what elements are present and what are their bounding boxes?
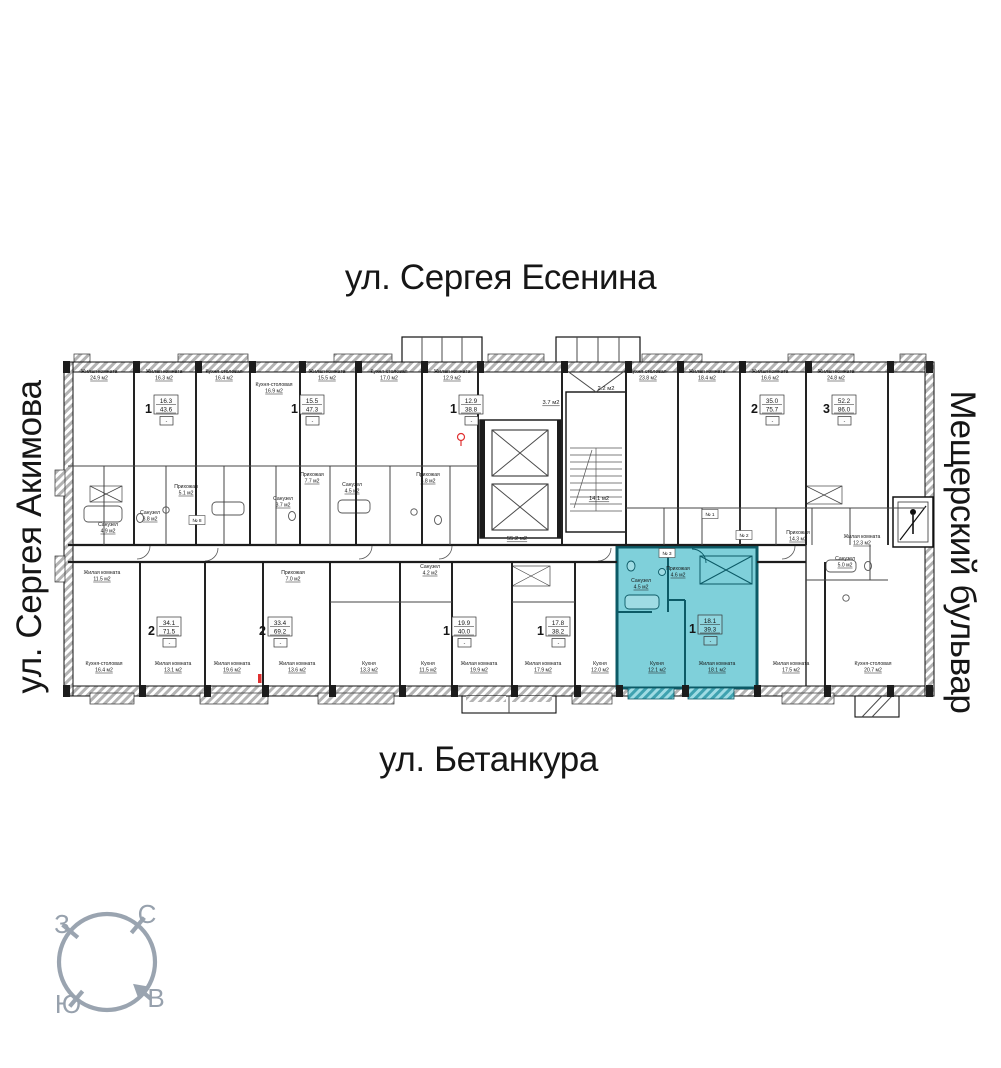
room-label: Кухня13.3 м2 bbox=[360, 661, 378, 674]
room-label: Санузел3.7 м2 bbox=[273, 496, 293, 509]
svg-text:4.5 м2: 4.5 м2 bbox=[345, 489, 360, 495]
svg-text:5.1 м2: 5.1 м2 bbox=[179, 491, 194, 497]
apartment-info-box[interactable]: 235.075.7- bbox=[751, 395, 784, 425]
room-label: Санузел4.5 м2 bbox=[631, 578, 651, 591]
svg-text:47.3: 47.3 bbox=[306, 406, 319, 413]
toilet-icon bbox=[289, 512, 296, 521]
svg-text:Кухня: Кухня bbox=[421, 661, 435, 667]
svg-text:Жилая комната: Жилая комната bbox=[752, 369, 789, 375]
room-label: Санузел4.2 м2 bbox=[420, 564, 440, 577]
svg-text:75.7: 75.7 bbox=[766, 406, 779, 413]
exterior-stair bbox=[855, 696, 899, 717]
svg-text:Жилая комната: Жилая комната bbox=[525, 661, 562, 667]
sink-icon bbox=[843, 595, 849, 601]
svg-text:2: 2 bbox=[751, 402, 758, 416]
svg-text:Прихожая: Прихожая bbox=[666, 566, 690, 572]
room-label: Кухня11.5 м2 bbox=[419, 661, 437, 674]
room-label: Кухня12.1 м2 bbox=[648, 661, 666, 674]
svg-text:24.8 м2: 24.8 м2 bbox=[827, 376, 845, 382]
wardrobe-icon bbox=[806, 486, 842, 504]
svg-text:18.1 м2: 18.1 м2 bbox=[708, 668, 726, 674]
svg-text:2: 2 bbox=[148, 624, 155, 638]
svg-text:Жилая комната: Жилая комната bbox=[214, 661, 251, 667]
room-label: Кухня-столовая16.9 м2 bbox=[256, 382, 293, 395]
unit-number-badge: № 2 bbox=[736, 531, 752, 540]
svg-text:Прихожая: Прихожая bbox=[300, 472, 324, 478]
apartment-info-box[interactable]: 119.940.0- bbox=[443, 617, 476, 647]
balcony-tab-highlight bbox=[688, 688, 734, 699]
room-label: Жилая комната12.3 м2 bbox=[844, 534, 881, 547]
svg-text:13.6 м2: 13.6 м2 bbox=[288, 668, 306, 674]
svg-text:7.0 м2: 7.0 м2 bbox=[286, 577, 301, 583]
room-label: Прихожая14.3 м2 bbox=[786, 530, 810, 543]
svg-text:Санузел: Санузел bbox=[631, 578, 651, 584]
svg-text:33.4: 33.4 bbox=[274, 620, 287, 627]
room-label: Кухня-столовая17.0 м2 bbox=[371, 369, 408, 382]
svg-text:3.7 м2: 3.7 м2 bbox=[276, 503, 291, 509]
bathtub-icon bbox=[84, 506, 122, 522]
svg-text:Кухня-столовая: Кухня-столовая bbox=[855, 661, 892, 667]
svg-text:19.9 м2: 19.9 м2 bbox=[470, 668, 488, 674]
svg-text:17.8: 17.8 bbox=[552, 620, 565, 627]
svg-text:39.3: 39.3 bbox=[704, 626, 717, 633]
room-label: Жилая комната12.9 м2 bbox=[434, 369, 471, 382]
room-label: Жилая комната13.1 м2 bbox=[155, 661, 192, 674]
toilet-icon bbox=[627, 561, 635, 571]
svg-text:Кухня-столовая: Кухня-столовая bbox=[206, 369, 243, 375]
room-label: Санузел5.0 м2 bbox=[835, 556, 855, 569]
svg-text:18.1: 18.1 bbox=[704, 618, 717, 625]
sink-icon bbox=[659, 569, 666, 576]
room-label: Санузел3.8 м2 bbox=[140, 510, 160, 523]
svg-text:Жилая комната: Жилая комната bbox=[279, 661, 316, 667]
svg-text:19.6 м2: 19.6 м2 bbox=[223, 668, 241, 674]
svg-text:Кухня-столовая: Кухня-столовая bbox=[371, 369, 408, 375]
room-label: Жилая комната19.6 м2 bbox=[214, 661, 251, 674]
room-label: Кухня12.0 м2 bbox=[591, 661, 609, 674]
svg-text:7.7 м2: 7.7 м2 bbox=[305, 479, 320, 485]
room-label: Прихожая7.7 м2 bbox=[300, 472, 324, 485]
core-area-label: 3.7 м2 bbox=[542, 400, 559, 406]
svg-text:16.3 м2: 16.3 м2 bbox=[155, 376, 173, 382]
svg-text:4.9 м2: 4.9 м2 bbox=[101, 529, 116, 535]
svg-text:71.5: 71.5 bbox=[163, 628, 176, 635]
compass-north: С bbox=[138, 899, 157, 929]
room-label: Жилая комната17.9 м2 bbox=[525, 661, 562, 674]
svg-text:15.5 м2: 15.5 м2 bbox=[318, 376, 336, 382]
room-label: Жилая комната11.5 м2 bbox=[84, 570, 121, 583]
room-label: Санузел4.5 м2 bbox=[342, 482, 362, 495]
svg-text:16.6 м2: 16.6 м2 bbox=[761, 376, 779, 382]
room-label: Жилая комната17.5 м2 bbox=[773, 661, 810, 674]
svg-text:16.4 м2: 16.4 м2 bbox=[95, 668, 113, 674]
svg-text:11.5 м2: 11.5 м2 bbox=[419, 668, 436, 674]
svg-text:Санузел: Санузел bbox=[420, 564, 440, 570]
svg-text:38.2: 38.2 bbox=[552, 628, 565, 635]
svg-text:40.0: 40.0 bbox=[458, 628, 471, 635]
svg-text:16.4 м2: 16.4 м2 bbox=[215, 376, 233, 382]
svg-text:34.1: 34.1 bbox=[163, 620, 176, 627]
svg-text:Санузел: Санузел bbox=[140, 510, 160, 516]
svg-text:17.5 м2: 17.5 м2 bbox=[782, 668, 800, 674]
room-label: Прихожая5.1 м2 bbox=[174, 484, 198, 497]
room-label: Жилая комната13.6 м2 bbox=[279, 661, 316, 674]
balcony-tab-highlight bbox=[628, 688, 674, 699]
svg-text:15.5: 15.5 bbox=[306, 398, 319, 405]
bottom-balcony bbox=[462, 696, 556, 713]
svg-text:Кухня: Кухня bbox=[593, 661, 607, 667]
svg-text:Жилая комната: Жилая комната bbox=[818, 369, 855, 375]
svg-text:Прихожая: Прихожая bbox=[786, 530, 810, 536]
room-label: Жилая комната24.9 м2 bbox=[81, 369, 118, 382]
svg-text:3: 3 bbox=[823, 402, 830, 416]
svg-text:11.5 м2: 11.5 м2 bbox=[93, 577, 110, 583]
stairwell bbox=[566, 370, 626, 532]
unit-number-badge: № 3 bbox=[659, 549, 675, 558]
svg-text:Кухня: Кухня bbox=[650, 661, 664, 667]
svg-text:16.9 м2: 16.9 м2 bbox=[265, 389, 283, 395]
svg-text:1: 1 bbox=[291, 402, 298, 416]
svg-text:Кухня: Кухня bbox=[362, 661, 376, 667]
unit-number-badge: № 8 bbox=[189, 516, 205, 525]
svg-text:17.0 м2: 17.0 м2 bbox=[380, 376, 398, 382]
svg-text:35.0: 35.0 bbox=[766, 398, 779, 405]
svg-text:38.8: 38.8 bbox=[465, 406, 478, 413]
svg-text:1: 1 bbox=[537, 624, 544, 638]
svg-text:13.3 м2: 13.3 м2 bbox=[360, 668, 378, 674]
apartment-info-box[interactable]: 352.286.0- bbox=[823, 395, 856, 425]
svg-text:1: 1 bbox=[443, 624, 450, 638]
room-label: Жилая комната18.4 м2 bbox=[689, 369, 726, 382]
svg-text:Прихожая: Прихожая bbox=[416, 472, 440, 478]
svg-text:23.8 м2: 23.8 м2 bbox=[639, 376, 657, 382]
room-label: Жилая комната24.8 м2 bbox=[818, 369, 855, 382]
svg-text:4.6 м2: 4.6 м2 bbox=[671, 573, 686, 579]
svg-text:Прихожая: Прихожая bbox=[174, 484, 198, 490]
room-label: Кухня-столовая16.4 м2 bbox=[86, 661, 123, 674]
apartment-info-box[interactable]: 234.171.5- bbox=[148, 617, 181, 647]
unit-number-badge: № 1 bbox=[702, 510, 718, 519]
svg-text:№ 3: № 3 bbox=[662, 551, 671, 557]
compass-east: В bbox=[147, 983, 164, 1013]
room-label: Жилая комната16.6 м2 bbox=[752, 369, 789, 382]
outer-wall-left bbox=[64, 362, 73, 696]
svg-text:14.1 м2: 14.1 м2 bbox=[589, 496, 609, 502]
svg-text:Жилая комната: Жилая комната bbox=[434, 369, 471, 375]
apartment-info-box[interactable]: 112.938.8- bbox=[450, 395, 483, 425]
svg-text:Жилая комната: Жилая комната bbox=[309, 369, 346, 375]
svg-text:Жилая комната: Жилая комната bbox=[844, 534, 881, 540]
side-tab bbox=[55, 556, 65, 582]
apartment-info-box[interactable]: 117.838.2- bbox=[537, 617, 570, 647]
core-area-label: 14.1 м2 bbox=[589, 496, 609, 502]
svg-text:Санузел: Санузел bbox=[835, 556, 855, 562]
svg-text:69.2: 69.2 bbox=[274, 628, 287, 635]
svg-text:2: 2 bbox=[259, 624, 266, 638]
svg-text:12.1 м2: 12.1 м2 bbox=[648, 668, 666, 674]
svg-text:43.6: 43.6 bbox=[160, 406, 173, 413]
fire-escape-icon bbox=[893, 497, 933, 547]
wardrobe-icon bbox=[512, 566, 550, 586]
svg-text:Жилая комната: Жилая комната bbox=[146, 369, 183, 375]
svg-text:19.9: 19.9 bbox=[458, 620, 471, 627]
svg-text:14.3 м2: 14.3 м2 bbox=[789, 537, 807, 543]
svg-text:3.8 м2: 3.8 м2 bbox=[143, 517, 158, 523]
core-area-label: 2.2 м2 bbox=[597, 386, 614, 392]
svg-text:Прихожая: Прихожая bbox=[281, 570, 305, 576]
svg-text:55.2 м2: 55.2 м2 bbox=[507, 536, 527, 542]
svg-text:17.9 м2: 17.9 м2 bbox=[534, 668, 552, 674]
compass-south: Ю bbox=[55, 989, 81, 1019]
svg-text:12.9 м2: 12.9 м2 bbox=[443, 376, 461, 382]
svg-text:1: 1 bbox=[689, 622, 696, 636]
svg-text:Жилая комната: Жилая комната bbox=[155, 661, 192, 667]
svg-text:86.0: 86.0 bbox=[838, 406, 851, 413]
svg-text:Жилая комната: Жилая комната bbox=[81, 369, 118, 375]
svg-text:Санузел: Санузел bbox=[342, 482, 362, 488]
room-label: Санузел4.9 м2 bbox=[98, 522, 118, 535]
svg-text:12.3 м2: 12.3 м2 bbox=[853, 541, 871, 547]
room-label: Кухня-столовая20.7 м2 bbox=[855, 661, 892, 674]
svg-text:52.2: 52.2 bbox=[838, 398, 851, 405]
svg-text:2.2 м2: 2.2 м2 bbox=[598, 386, 615, 392]
svg-text:Кухня-столовая: Кухня-столовая bbox=[86, 661, 123, 667]
apartment-info-box[interactable]: 116.343.6- bbox=[145, 395, 178, 425]
svg-text:20.7 м2: 20.7 м2 bbox=[864, 668, 882, 674]
compass: С З В Ю bbox=[54, 899, 165, 1019]
svg-text:12.9: 12.9 bbox=[465, 398, 478, 405]
svg-text:№ 2: № 2 bbox=[739, 533, 748, 539]
svg-text:3.7 м2: 3.7 м2 bbox=[543, 400, 560, 406]
svg-text:№ 1: № 1 bbox=[705, 512, 714, 518]
compass-west: З bbox=[54, 909, 70, 939]
svg-text:Жилая комната: Жилая комната bbox=[84, 570, 121, 576]
svg-text:Жилая комната: Жилая комната bbox=[461, 661, 498, 667]
svg-text:Кухня-столовая: Кухня-столовая bbox=[630, 369, 667, 375]
outer-wall-top bbox=[64, 362, 934, 372]
bathtub-icon bbox=[625, 595, 659, 609]
svg-text:1: 1 bbox=[450, 402, 457, 416]
svg-text:5.0 м2: 5.0 м2 bbox=[838, 563, 853, 569]
side-tab bbox=[55, 470, 65, 496]
bathtub-icon bbox=[338, 500, 370, 513]
room-label: Прихожая7.0 м2 bbox=[281, 570, 305, 583]
svg-text:16.3: 16.3 bbox=[160, 398, 173, 405]
elevator-shaft bbox=[492, 484, 548, 530]
svg-text:Жилая комната: Жилая комната bbox=[699, 661, 736, 667]
wardrobe-icon bbox=[90, 486, 122, 502]
svg-text:Жилая комната: Жилая комната bbox=[773, 661, 810, 667]
svg-text:Кухня-столовая: Кухня-столовая bbox=[256, 382, 293, 388]
svg-text:18.4 м2: 18.4 м2 bbox=[698, 376, 716, 382]
svg-text:№ 8: № 8 bbox=[192, 518, 201, 524]
room-label: Кухня-столовая16.4 м2 bbox=[206, 369, 243, 382]
room-label: Кухня-столовая23.8 м2 bbox=[630, 369, 667, 382]
svg-text:4.2 м2: 4.2 м2 bbox=[423, 571, 438, 577]
core-area-label: 55.2 м2 bbox=[507, 536, 527, 542]
svg-text:12.0 м2: 12.0 м2 bbox=[591, 668, 609, 674]
room-label: Жилая комната15.5 м2 bbox=[309, 369, 346, 382]
toilet-icon bbox=[435, 516, 442, 525]
svg-text:Санузел: Санузел bbox=[273, 496, 293, 502]
room-label: Жилая комната19.9 м2 bbox=[461, 661, 498, 674]
sink-icon bbox=[411, 509, 417, 515]
svg-text:13.1 м2: 13.1 м2 bbox=[164, 668, 182, 674]
bathtub-icon bbox=[212, 502, 244, 515]
svg-text:4.5 м2: 4.5 м2 bbox=[634, 585, 649, 591]
red-marker bbox=[258, 434, 465, 684]
floor-plan: Жилая комната24.9 м2Жилая комната16.3 м2… bbox=[0, 0, 1001, 1068]
svg-text:1: 1 bbox=[145, 402, 152, 416]
svg-text:5.8 м2: 5.8 м2 bbox=[421, 479, 436, 485]
elevator-core bbox=[480, 420, 562, 538]
room-label: Прихожая5.8 м2 bbox=[416, 472, 440, 485]
svg-text:24.9 м2: 24.9 м2 bbox=[90, 376, 108, 382]
elevator-shaft bbox=[492, 430, 548, 476]
svg-text:Жилая комната: Жилая комната bbox=[689, 369, 726, 375]
svg-text:Санузел: Санузел bbox=[98, 522, 118, 528]
apartment-info-box[interactable]: 115.547.3- bbox=[291, 395, 324, 425]
room-label: Жилая комната16.3 м2 bbox=[146, 369, 183, 382]
